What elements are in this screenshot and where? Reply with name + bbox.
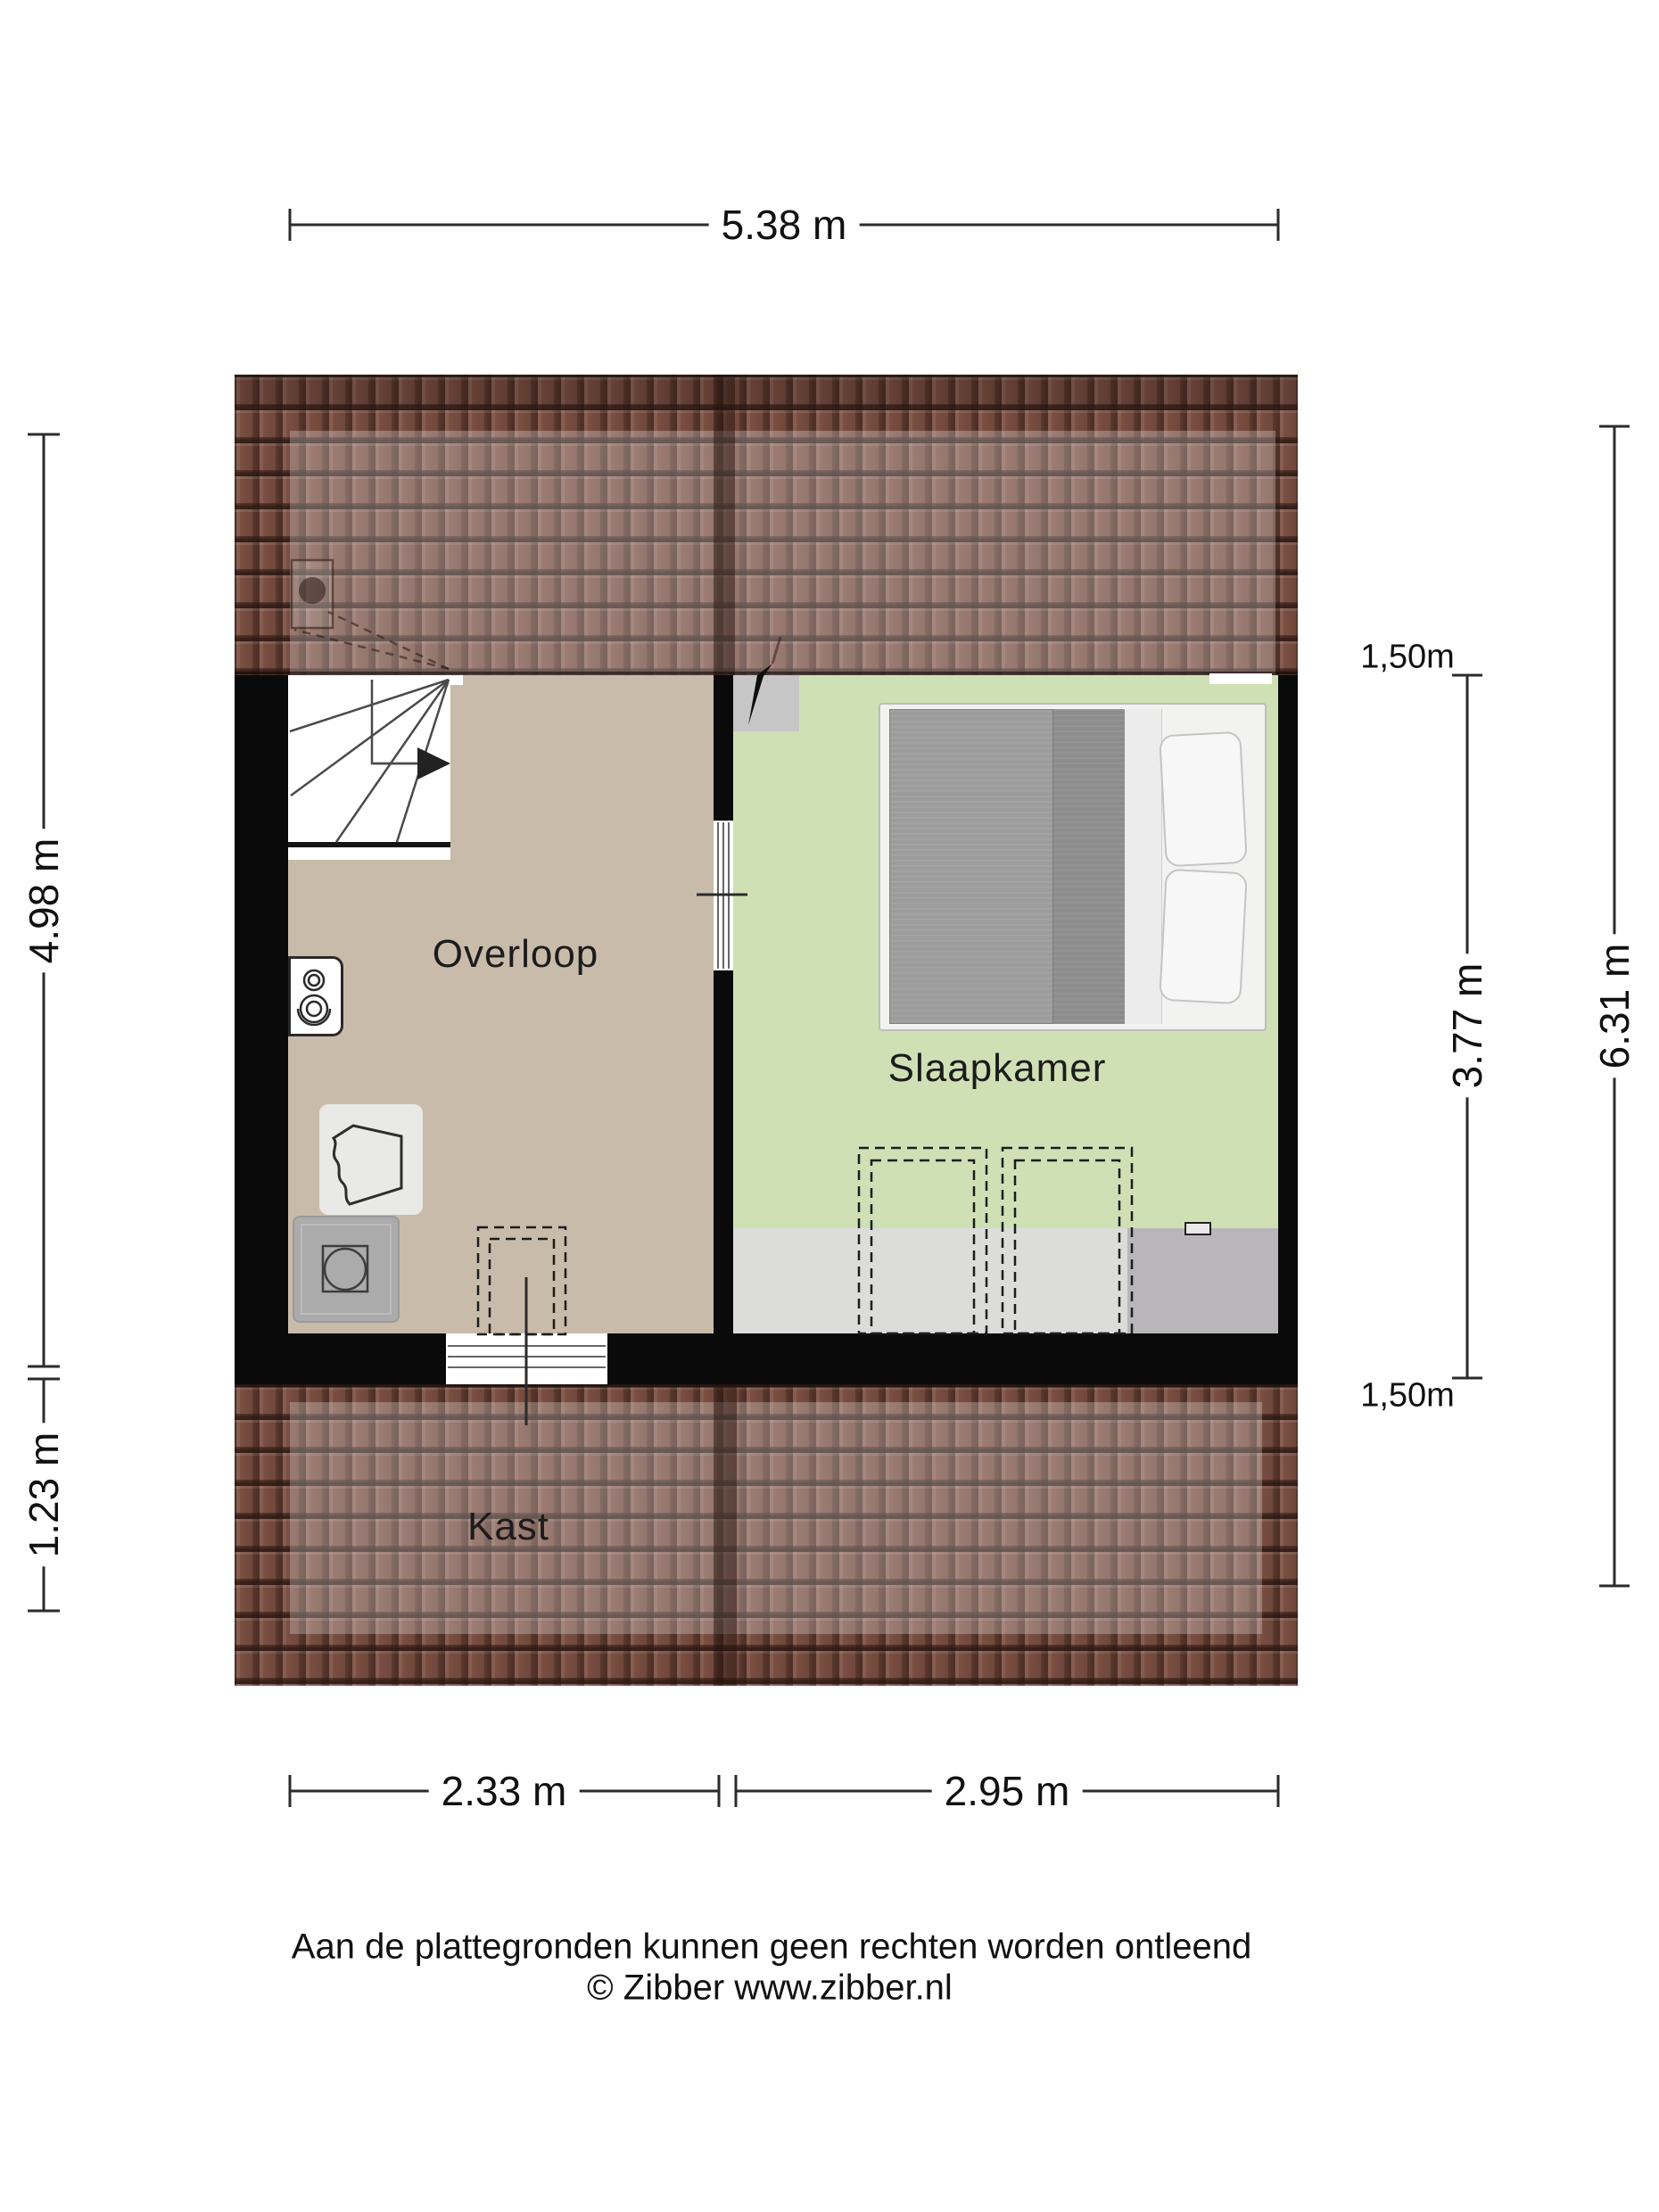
linework-overlay — [0, 0, 1659, 2212]
stair-ghost-line — [328, 612, 449, 669]
chair-icon — [334, 1126, 401, 1204]
dimension-lines — [28, 209, 1630, 1807]
footer-disclaimer: Aan de plattegronden kunnen geen rechten… — [292, 1927, 1251, 1968]
dimension-right-room-depth: 3.77 m — [1446, 954, 1489, 1098]
stair-direction-arrow-icon — [417, 747, 450, 780]
room-label-slaapkamer: Slaapkamer — [888, 1046, 1107, 1091]
dimension-bottom-right: 2.95 m — [932, 1770, 1083, 1812]
room-label-overloop: Overloop — [433, 932, 599, 977]
footer-credit: © Zibber www.zibber.nl — [587, 1969, 953, 2009]
ventilation-unit-detail — [298, 970, 330, 1025]
flue-needle-icon — [748, 664, 772, 725]
dimension-bottom-left: 2.33 m — [429, 1770, 580, 1812]
floorplan-page: Overloop Slaapkamer Kast 5.38 m 4.98 m 1… — [0, 0, 1659, 2212]
stair-ghost-line — [294, 630, 449, 669]
washing-machine-drum — [323, 1246, 367, 1292]
dimension-right-total-depth: 6.31 m — [1593, 935, 1636, 1078]
height-marker-bottom: 1,50m — [1360, 1377, 1455, 1416]
chimney-flue-icon — [299, 577, 326, 604]
dimension-top-width: 5.38 m — [709, 203, 860, 246]
dimension-left-upper: 4.98 m — [22, 829, 65, 973]
flue-needle-tail — [772, 637, 780, 664]
height-marker-top: 1,50m — [1360, 639, 1455, 677]
wall-socket-symbol — [1185, 1223, 1210, 1234]
skylight-outlines — [478, 1148, 1132, 1334]
room-label-kast: Kast — [467, 1505, 549, 1549]
dimension-left-lower: 1.23 m — [22, 1424, 65, 1567]
